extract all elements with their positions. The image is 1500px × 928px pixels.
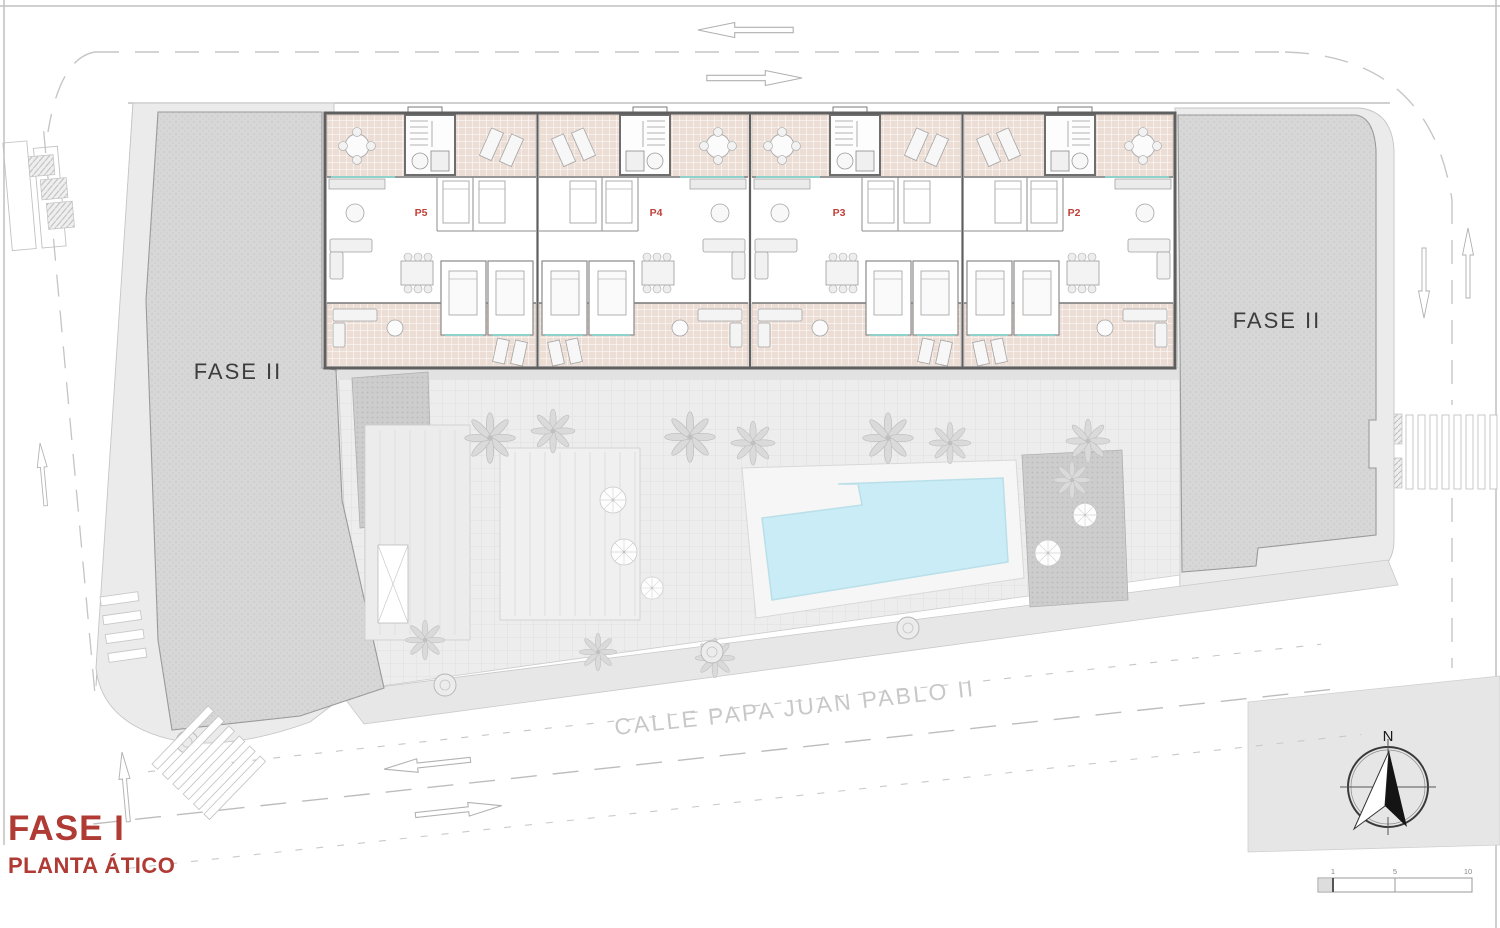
fase2-block-right: FASE II bbox=[1178, 115, 1376, 572]
scale-tick-1: 1 bbox=[1331, 867, 1335, 876]
palm-icon bbox=[665, 412, 716, 463]
sidewalk-southeast-band bbox=[1248, 676, 1500, 852]
deck-center bbox=[500, 448, 640, 620]
palm-icon bbox=[1066, 419, 1110, 463]
arrow-left-icon bbox=[698, 23, 793, 38]
floor-title: PLANTA ÁTICO bbox=[8, 853, 175, 878]
parasol-icon bbox=[600, 487, 626, 513]
unit-module-2 bbox=[538, 107, 751, 368]
fase2-left-label-text: FASE II bbox=[194, 359, 283, 384]
arrow-up-icon bbox=[35, 443, 51, 507]
palm-icon bbox=[405, 620, 445, 660]
unit-module-4 bbox=[963, 107, 1176, 368]
tree-icon bbox=[434, 674, 456, 696]
palm-icon bbox=[1053, 461, 1090, 498]
right-road bbox=[1380, 200, 1497, 668]
arrow-up-icon bbox=[1463, 228, 1474, 298]
scale-tick-5: 5 bbox=[1393, 867, 1397, 876]
scale-bar: 1 5 10 bbox=[1318, 867, 1472, 892]
scale-tick-10: 10 bbox=[1464, 867, 1472, 876]
unit-module-3 bbox=[750, 107, 963, 368]
palm-icon bbox=[531, 409, 575, 453]
crosswalk-right bbox=[1380, 414, 1497, 489]
parasol-icon bbox=[611, 539, 637, 565]
street-name-label: CALLE PAPA JUAN PABLO II bbox=[613, 675, 977, 740]
compass-north-label: N bbox=[1383, 728, 1394, 745]
top-left-curve-dashed-line bbox=[48, 52, 95, 132]
building-fase1: P5 P4 P3 P2 bbox=[325, 107, 1175, 368]
parasol-icon bbox=[1035, 540, 1061, 566]
unit-label-p2: P2 bbox=[1068, 207, 1081, 219]
parasol-icon bbox=[1073, 503, 1096, 526]
site-plan-svg: FASE II FASE II bbox=[0, 0, 1500, 928]
tree-icon bbox=[701, 641, 723, 663]
bottom-road-edge-dashed-line-2 bbox=[128, 734, 1361, 868]
unit-label-p4: P4 bbox=[650, 207, 663, 219]
unit-module-1 bbox=[325, 107, 538, 368]
parasol-icon bbox=[641, 577, 663, 599]
phase-title: FASE I bbox=[8, 809, 125, 848]
title-block: FASE I PLANTA ÁTICO bbox=[8, 809, 175, 878]
arrow-right-icon bbox=[707, 71, 802, 86]
left-road-hatched-islands bbox=[28, 153, 74, 230]
arrow-right-icon bbox=[415, 799, 503, 822]
palm-icon bbox=[929, 422, 971, 464]
tree-icon bbox=[897, 617, 919, 639]
unit-label-p3: P3 bbox=[833, 207, 846, 219]
palm-icon bbox=[579, 633, 616, 670]
palm-icon bbox=[863, 413, 914, 464]
palm-icon bbox=[465, 413, 516, 464]
garden-upper-path bbox=[338, 368, 1180, 380]
arrow-down-icon bbox=[1419, 248, 1430, 318]
fase2-right-label-text: FASE II bbox=[1233, 308, 1322, 333]
arrow-left-icon bbox=[383, 753, 471, 776]
palm-icon bbox=[731, 421, 775, 465]
unit-label-p5: P5 bbox=[415, 207, 428, 219]
